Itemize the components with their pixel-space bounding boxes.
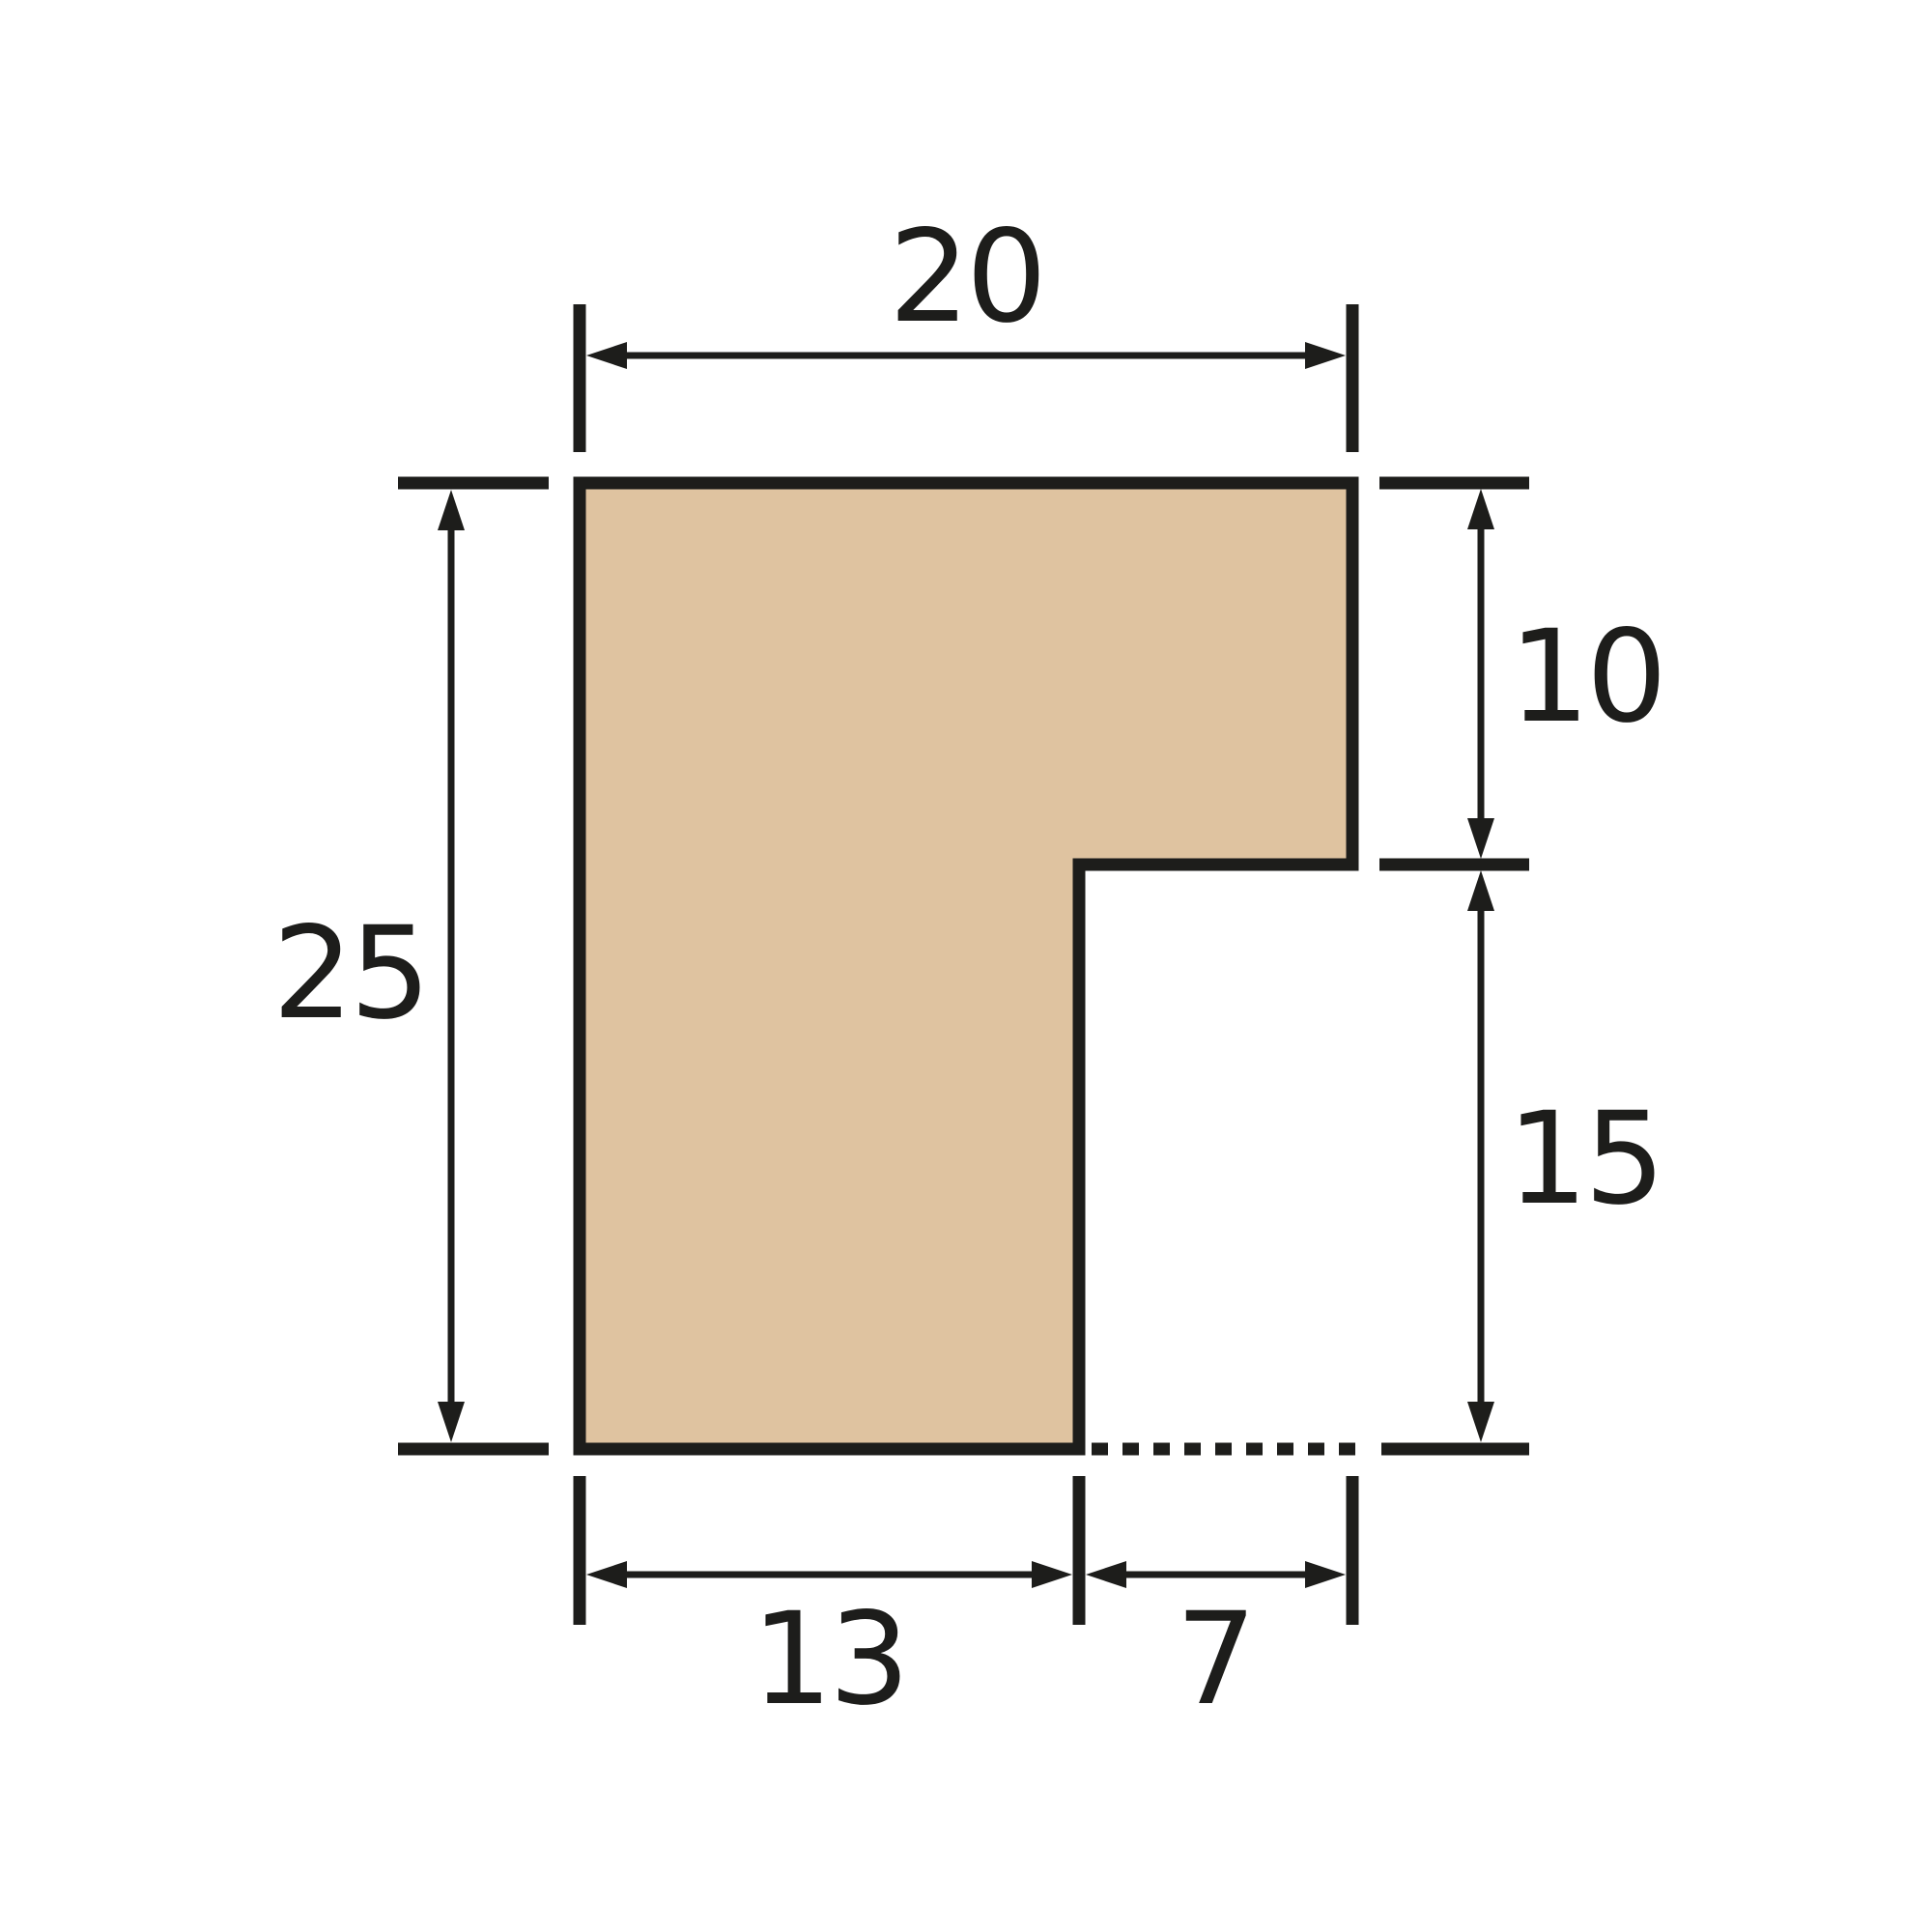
arrowhead-bottom-right-end xyxy=(1305,1561,1346,1588)
dimension-label-right-upper: 10 xyxy=(1509,603,1663,752)
arrowhead-bottom-left-start xyxy=(586,1561,627,1588)
arrowhead-left-bottom xyxy=(438,1402,465,1442)
arrowhead-left-top xyxy=(438,490,465,530)
arrowhead-bottom-right-start xyxy=(1086,1561,1126,1588)
l-profile-cross-section xyxy=(580,483,1352,1449)
dimension-label-left-height: 25 xyxy=(272,899,427,1048)
dimension-bottom-right: 7 xyxy=(1086,1476,1352,1734)
arrowhead-top-left xyxy=(586,342,627,369)
dimension-label-bottom-left: 13 xyxy=(752,1585,906,1734)
dimension-label-bottom-right: 7 xyxy=(1176,1585,1253,1734)
technical-drawing: 20 25 10 15 xyxy=(0,0,1932,1932)
dimension-label-right-lower: 15 xyxy=(1507,1085,1662,1234)
arrowhead-bottom-left-end xyxy=(1032,1561,1072,1588)
dimension-top-width: 20 xyxy=(580,203,1352,452)
arrowhead-right-upper-bottom xyxy=(1467,818,1494,859)
dimension-right-upper: 10 xyxy=(1379,483,1663,865)
dimension-label-top-width: 20 xyxy=(889,203,1043,352)
arrowhead-top-right xyxy=(1305,342,1346,369)
dimension-right-lower: 15 xyxy=(1381,870,1662,1449)
profile-drawing-canvas: 20 25 10 15 xyxy=(0,0,1932,1932)
dimension-left-height: 25 xyxy=(272,483,549,1449)
dimension-bottom-left: 13 xyxy=(580,1476,1079,1734)
arrowhead-right-upper-top xyxy=(1467,489,1494,529)
arrowhead-right-lower-top xyxy=(1467,870,1494,911)
arrowhead-right-lower-bottom xyxy=(1467,1402,1494,1442)
